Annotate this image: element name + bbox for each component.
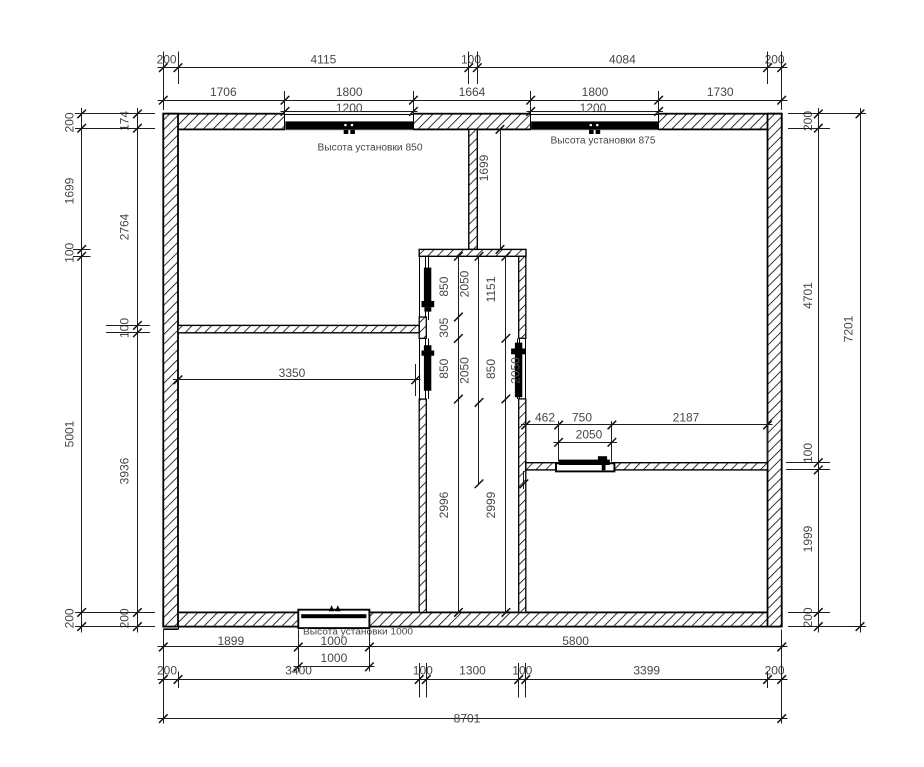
svg-text:100: 100	[413, 664, 433, 678]
svg-text:1999: 1999	[801, 525, 815, 552]
svg-text:1151: 1151	[484, 276, 498, 302]
svg-text:1800: 1800	[336, 85, 363, 99]
svg-text:8701: 8701	[454, 711, 481, 725]
svg-text:4084: 4084	[609, 53, 636, 67]
svg-text:1699: 1699	[477, 154, 491, 181]
svg-text:100: 100	[461, 53, 481, 67]
svg-text:200: 200	[63, 112, 77, 132]
svg-text:5001: 5001	[63, 420, 77, 447]
svg-text:100: 100	[63, 242, 77, 262]
svg-text:1706: 1706	[210, 85, 237, 99]
svg-text:850: 850	[484, 359, 498, 379]
svg-text:2050: 2050	[576, 428, 603, 442]
svg-text:2764: 2764	[118, 213, 132, 240]
svg-text:1200: 1200	[336, 101, 363, 115]
svg-text:200: 200	[118, 608, 132, 628]
svg-text:4115: 4115	[310, 53, 336, 67]
svg-text:462: 462	[535, 410, 555, 424]
svg-text:2050: 2050	[457, 357, 471, 384]
svg-text:Высота установки 1000: Высота установки 1000	[303, 627, 413, 638]
svg-text:1800: 1800	[582, 85, 609, 99]
svg-text:1200: 1200	[580, 101, 607, 115]
svg-text:1664: 1664	[459, 85, 486, 99]
svg-text:850: 850	[437, 358, 451, 378]
svg-text:2050: 2050	[508, 357, 522, 384]
svg-text:2187: 2187	[673, 410, 700, 424]
svg-text:750: 750	[572, 410, 592, 424]
svg-text:1000: 1000	[321, 634, 348, 648]
svg-text:1300: 1300	[459, 664, 486, 678]
svg-text:3936: 3936	[118, 457, 132, 484]
svg-text:100: 100	[118, 318, 132, 338]
svg-text:850: 850	[437, 276, 451, 296]
svg-text:100: 100	[512, 664, 532, 678]
svg-text:1000: 1000	[321, 651, 348, 665]
svg-text:100: 100	[801, 443, 815, 463]
svg-text:7201: 7201	[842, 315, 856, 342]
svg-text:200: 200	[157, 664, 177, 678]
svg-text:Высота установки 875: Высота установки 875	[551, 136, 656, 147]
svg-text:2999: 2999	[484, 491, 498, 518]
svg-text:1899: 1899	[217, 634, 244, 648]
svg-text:5800: 5800	[562, 634, 589, 648]
svg-text:Высота установки 850: Высота установки 850	[318, 143, 423, 154]
svg-text:305: 305	[437, 317, 451, 337]
svg-text:2050: 2050	[457, 270, 471, 297]
svg-text:4701: 4701	[801, 282, 815, 309]
svg-text:3350: 3350	[279, 366, 306, 380]
svg-text:200: 200	[63, 608, 77, 628]
svg-text:1730: 1730	[707, 85, 734, 99]
svg-text:2996: 2996	[437, 491, 451, 518]
svg-text:1699: 1699	[63, 177, 77, 204]
svg-text:200: 200	[801, 607, 815, 627]
svg-text:200: 200	[157, 53, 177, 67]
svg-text:3399: 3399	[633, 664, 660, 678]
